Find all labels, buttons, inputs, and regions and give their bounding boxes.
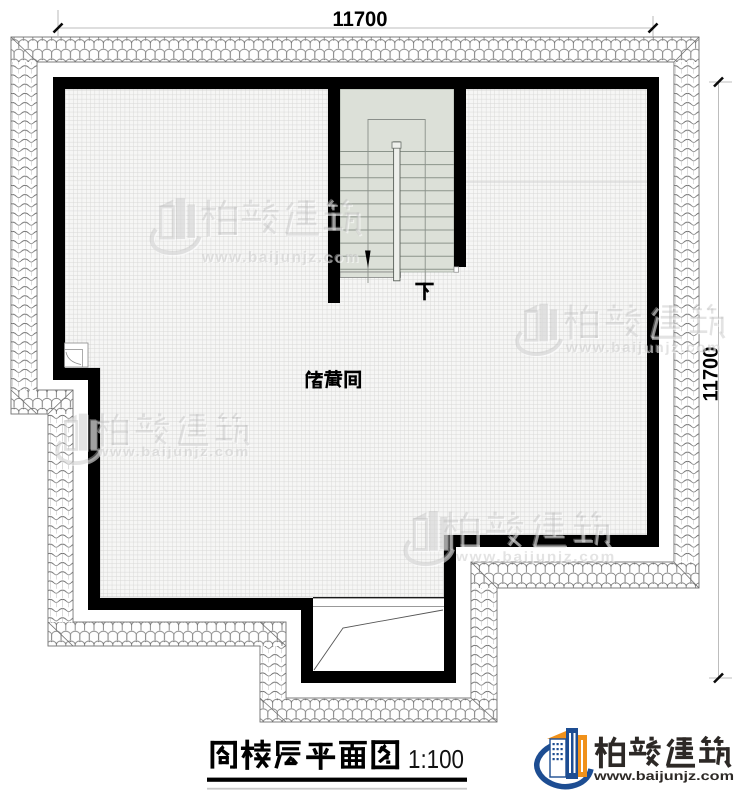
svg-text:www.baijunjz.com: www.baijunjz.com <box>565 339 722 355</box>
svg-text:1:100: 1:100 <box>408 744 464 774</box>
svg-text:www.baijunjz.com: www.baijunjz.com <box>201 249 360 266</box>
svg-text:11700: 11700 <box>333 8 388 31</box>
svg-text:www.baijunjz.com: www.baijunjz.com <box>593 769 734 783</box>
svg-text:www.baijunjz.com: www.baijunjz.com <box>96 444 250 459</box>
svg-text:www.baijunjz.com: www.baijunjz.com <box>455 549 616 564</box>
